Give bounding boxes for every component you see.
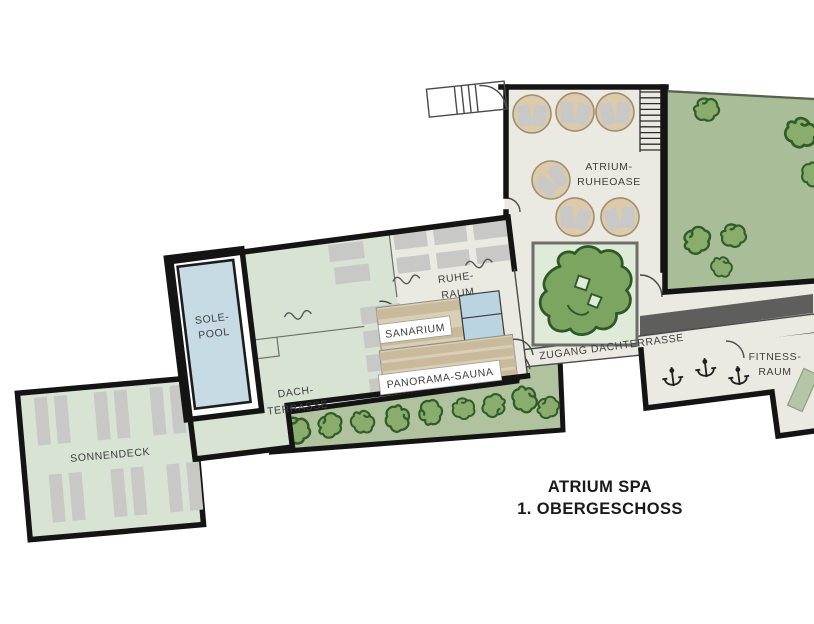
plan-title-line1: ATRIUM SPA — [548, 478, 652, 496]
fitness-raum-label-1: FITNESS- — [749, 351, 802, 363]
roof-garden — [664, 88, 814, 292]
floor-plan-page: SONNENDECK — [0, 0, 814, 624]
sonnendeck-deck: SONNENDECK — [17, 378, 204, 540]
fitness-raum-label-2: RAUM — [758, 366, 791, 378]
floor-plan-svg: SONNENDECK — [0, 0, 814, 624]
plan-title-line2: 1. OBERGESCHOSS — [517, 500, 683, 518]
atrium-ruheoase-label-2: RUHEOASE — [577, 176, 641, 188]
atrium-ruheoase-label-1: ATRIUM- — [585, 161, 632, 173]
